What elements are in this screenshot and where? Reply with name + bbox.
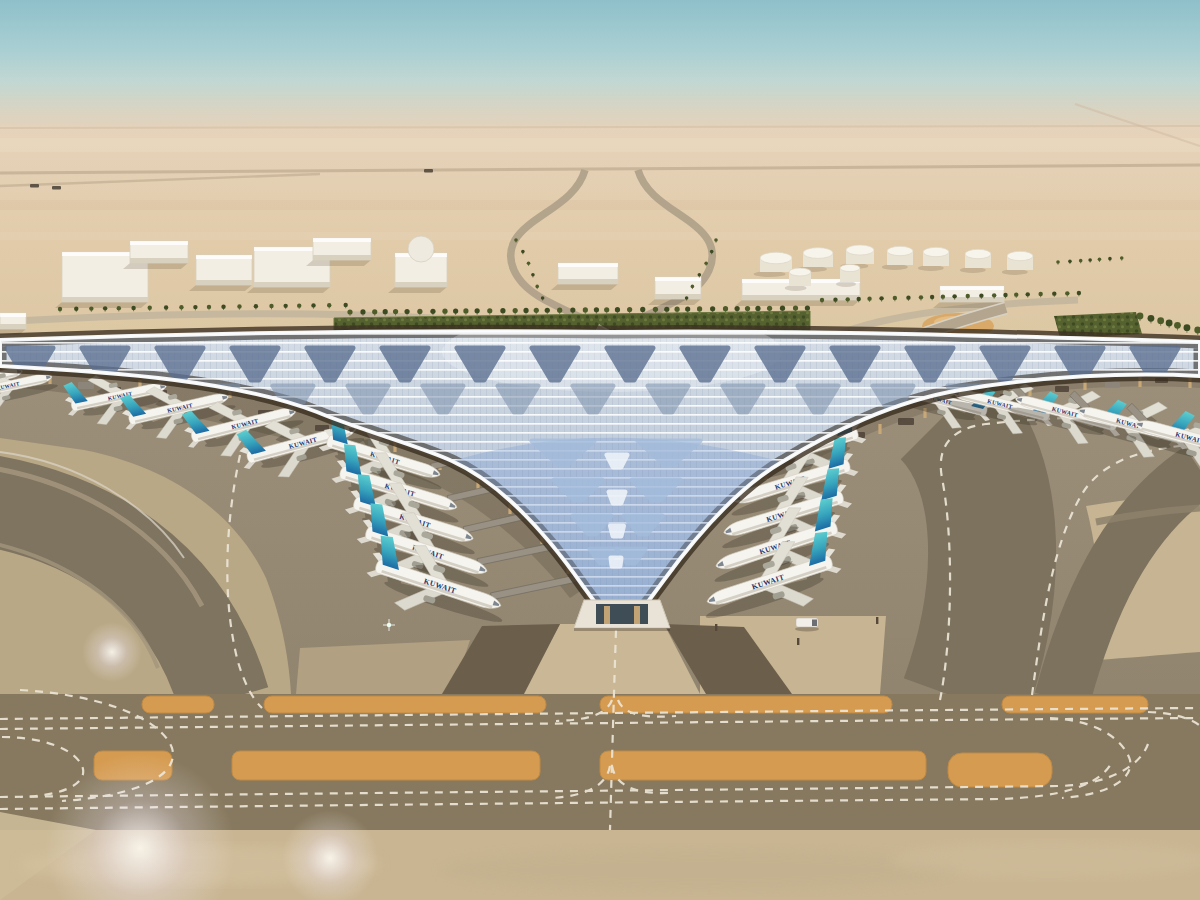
- palm-tree: [833, 297, 837, 301]
- warehouse-building: [0, 313, 26, 335]
- palm-tree: [327, 303, 331, 307]
- palm-tree: [521, 250, 525, 254]
- distant-vehicle: [30, 184, 39, 188]
- palm-tree: [1014, 292, 1018, 296]
- palm-tree: [1052, 291, 1056, 295]
- palm-tree: [221, 304, 225, 308]
- palm-tree: [793, 306, 798, 311]
- palm-tree: [1038, 292, 1042, 296]
- palm-tree: [131, 306, 135, 310]
- pavement-mottle: [440, 848, 960, 892]
- palm-tree: [74, 307, 78, 311]
- palm-tree: [148, 306, 152, 310]
- palm-tree: [1065, 291, 1069, 295]
- palm-tree: [697, 306, 702, 311]
- palm-tree: [1108, 257, 1112, 261]
- palm-tree: [545, 308, 550, 313]
- roof-feather: [611, 558, 621, 566]
- palm-tree: [992, 293, 996, 297]
- palm-tree: [952, 294, 956, 298]
- entrance-pavilion: [574, 600, 670, 631]
- palm-tree: [710, 306, 715, 311]
- roof-feather: [611, 526, 624, 536]
- palm-tree: [941, 294, 945, 298]
- palm-tree: [755, 306, 760, 311]
- canopy-column: [878, 424, 881, 434]
- palm-tree: [979, 293, 983, 297]
- ground-equipment: [898, 418, 914, 425]
- palm-tree: [360, 309, 365, 314]
- palm-tree: [930, 295, 934, 299]
- palm-tree: [1137, 313, 1144, 320]
- warehouse-building: [189, 255, 252, 291]
- warehouse-building: [306, 238, 371, 266]
- palm-tree: [867, 296, 871, 300]
- palm-tree: [117, 306, 121, 310]
- palm-tree: [514, 238, 518, 242]
- palm-tree: [879, 296, 883, 300]
- palm-tree: [714, 238, 718, 242]
- palm-tree: [780, 306, 785, 311]
- apron-light-center-left: [296, 640, 470, 694]
- palm-tree: [1148, 315, 1155, 322]
- palm-tree: [417, 309, 422, 314]
- palm-tree: [906, 295, 910, 299]
- palm-tree: [805, 305, 810, 310]
- palm-tree: [745, 306, 750, 311]
- palm-tree: [685, 296, 689, 300]
- palm-tree: [1174, 322, 1181, 329]
- taxiway-orange-pad: [948, 753, 1052, 787]
- pavement-mottle: [890, 842, 1200, 878]
- sky: [0, 0, 1200, 132]
- palm-tree: [570, 307, 575, 312]
- palm-tree: [283, 304, 287, 308]
- palm-tree: [557, 308, 562, 313]
- palm-tree: [640, 307, 645, 312]
- palm-tree: [531, 273, 535, 277]
- palm-tree: [535, 285, 539, 289]
- taxiway-orange-strip: [264, 696, 546, 713]
- ground-equipment: [78, 382, 94, 389]
- palm-tree: [311, 303, 315, 307]
- palm-tree: [1026, 292, 1030, 296]
- palm-tree: [685, 306, 690, 311]
- palm-tree: [179, 305, 183, 309]
- distant-vehicle: [424, 169, 433, 173]
- palm-tree: [343, 303, 347, 307]
- palm-tree: [207, 305, 211, 309]
- palm-tree: [1077, 291, 1081, 295]
- palm-tree: [664, 307, 669, 312]
- ground-equipment: [1055, 386, 1069, 392]
- airport-aerial-rendering: KUWAIT: [0, 0, 1200, 900]
- taxiway-orange-strip: [1002, 696, 1148, 713]
- palm-tree: [627, 307, 632, 312]
- desert-light-band: [0, 232, 1200, 240]
- palm-tree: [237, 304, 241, 308]
- taxiway-orange-strip: [600, 751, 926, 780]
- palm-tree: [604, 307, 609, 312]
- palm-tree: [653, 307, 658, 312]
- palm-tree: [723, 306, 728, 311]
- palm-tree: [583, 307, 588, 312]
- palm-tree: [710, 250, 714, 254]
- palm-tree: [58, 307, 62, 311]
- palm-tree: [393, 309, 398, 314]
- palm-tree: [523, 308, 528, 313]
- palm-tree: [534, 308, 539, 313]
- palm-tree: [1184, 324, 1191, 331]
- palm-tree: [193, 305, 197, 309]
- palm-tree: [857, 297, 861, 301]
- palm-tree: [487, 308, 492, 313]
- palm-tree: [442, 309, 447, 314]
- lens-flare: [82, 622, 142, 682]
- warehouse-building: [648, 277, 701, 305]
- distant-vehicle: [52, 186, 61, 190]
- palm-tree: [698, 273, 702, 277]
- palm-tree: [704, 261, 708, 265]
- taxiway-orange-strip: [600, 696, 892, 713]
- palm-tree: [674, 307, 679, 312]
- palm-tree: [820, 298, 824, 302]
- palm-tree: [1068, 260, 1072, 264]
- warehouse-building: [551, 263, 618, 290]
- palm-tree: [735, 306, 740, 311]
- taxiway-orange-strip: [232, 751, 540, 780]
- palm-tree: [527, 261, 531, 265]
- palm-tree: [893, 296, 897, 300]
- desert-haze-band: [0, 138, 1200, 152]
- palm-tree: [846, 297, 850, 301]
- palm-tree: [347, 309, 352, 314]
- palm-tree: [383, 309, 388, 314]
- palm-tree: [919, 295, 923, 299]
- palm-tree: [404, 309, 409, 314]
- palm-tree: [297, 303, 301, 307]
- dome-building: [408, 236, 434, 262]
- palm-tree: [691, 285, 695, 289]
- palm-tree: [541, 296, 545, 300]
- palm-tree: [594, 307, 599, 312]
- palm-tree: [164, 305, 168, 309]
- ground-equipment: [1105, 382, 1120, 388]
- roof-feather: [609, 492, 625, 503]
- palm-tree: [430, 309, 435, 314]
- palm-tree: [615, 307, 620, 312]
- palm-tree: [254, 304, 258, 308]
- palm-tree: [372, 309, 377, 314]
- palm-tree: [463, 308, 468, 313]
- palm-tree: [89, 306, 93, 310]
- palm-tree: [1120, 256, 1124, 260]
- palm-tree: [475, 308, 480, 313]
- palm-tree: [1098, 258, 1102, 262]
- palm-tree: [1079, 259, 1083, 263]
- palm-tree: [269, 304, 273, 308]
- palm-tree: [1088, 258, 1092, 262]
- palm-tree: [1056, 260, 1060, 264]
- palm-tree: [103, 306, 107, 310]
- taxiway-orange-strip: [142, 696, 214, 713]
- warehouse-building: [123, 241, 188, 269]
- palm-tree: [500, 308, 505, 313]
- palm-tree: [513, 308, 518, 313]
- palm-tree: [1166, 320, 1173, 327]
- palm-tree: [1157, 317, 1164, 324]
- palm-tree: [453, 308, 458, 313]
- roof-feather: [607, 455, 627, 467]
- service-van: [795, 618, 819, 632]
- taxiway-curve-east: [946, 414, 992, 700]
- palm-tree: [767, 306, 772, 311]
- desert-shade-band: [0, 200, 1200, 210]
- palm-tree: [966, 294, 970, 298]
- palm-tree: [1003, 293, 1007, 297]
